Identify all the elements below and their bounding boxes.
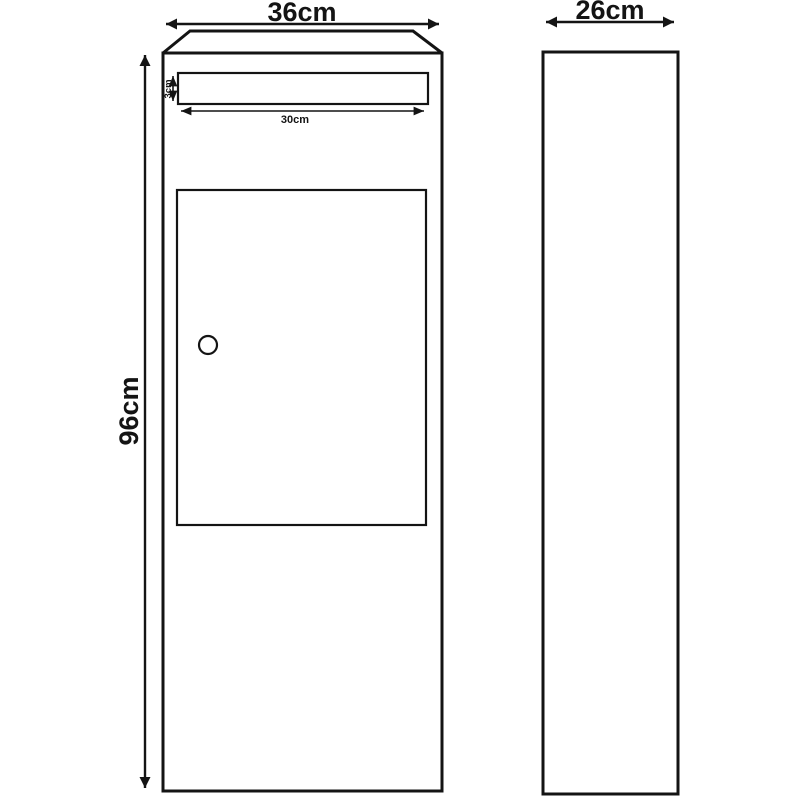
front-body-outline (163, 53, 442, 791)
depth-dimension-label: 26cm (575, 0, 644, 25)
letterbox-dimension-diagram: 36cm 26cm 96cm 3cm 30cm (0, 0, 800, 800)
parcel-door (177, 190, 426, 525)
side-view (543, 52, 678, 794)
width-dimension-label: 36cm (267, 0, 336, 27)
mail-slot (178, 73, 428, 104)
width-dimension: 36cm (166, 0, 439, 27)
slot-height-dimension: 3cm (163, 76, 174, 101)
height-dimension-label: 96cm (114, 376, 144, 445)
drawing-canvas: 36cm 26cm 96cm 3cm 30cm (0, 0, 800, 800)
slot-height-dimension-label: 3cm (163, 79, 174, 98)
front-lid-outline (163, 31, 442, 53)
side-body-outline (543, 52, 678, 794)
depth-dimension: 26cm (546, 0, 674, 25)
lock-circle (199, 336, 217, 354)
front-view (163, 31, 442, 791)
slot-width-dimension: 30cm (181, 111, 424, 126)
height-dimension: 96cm (114, 55, 145, 788)
slot-width-dimension-label: 30cm (281, 114, 309, 126)
